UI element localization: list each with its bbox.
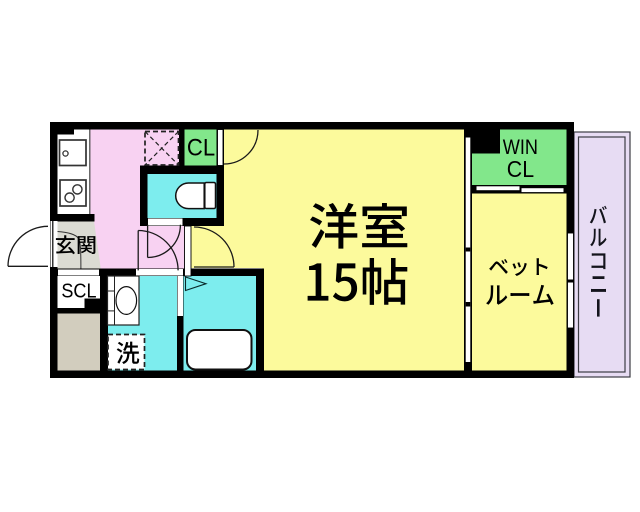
- svg-text:SCL: SCL: [61, 280, 96, 303]
- svg-text:CL: CL: [187, 135, 215, 162]
- svg-text:CL: CL: [507, 156, 534, 182]
